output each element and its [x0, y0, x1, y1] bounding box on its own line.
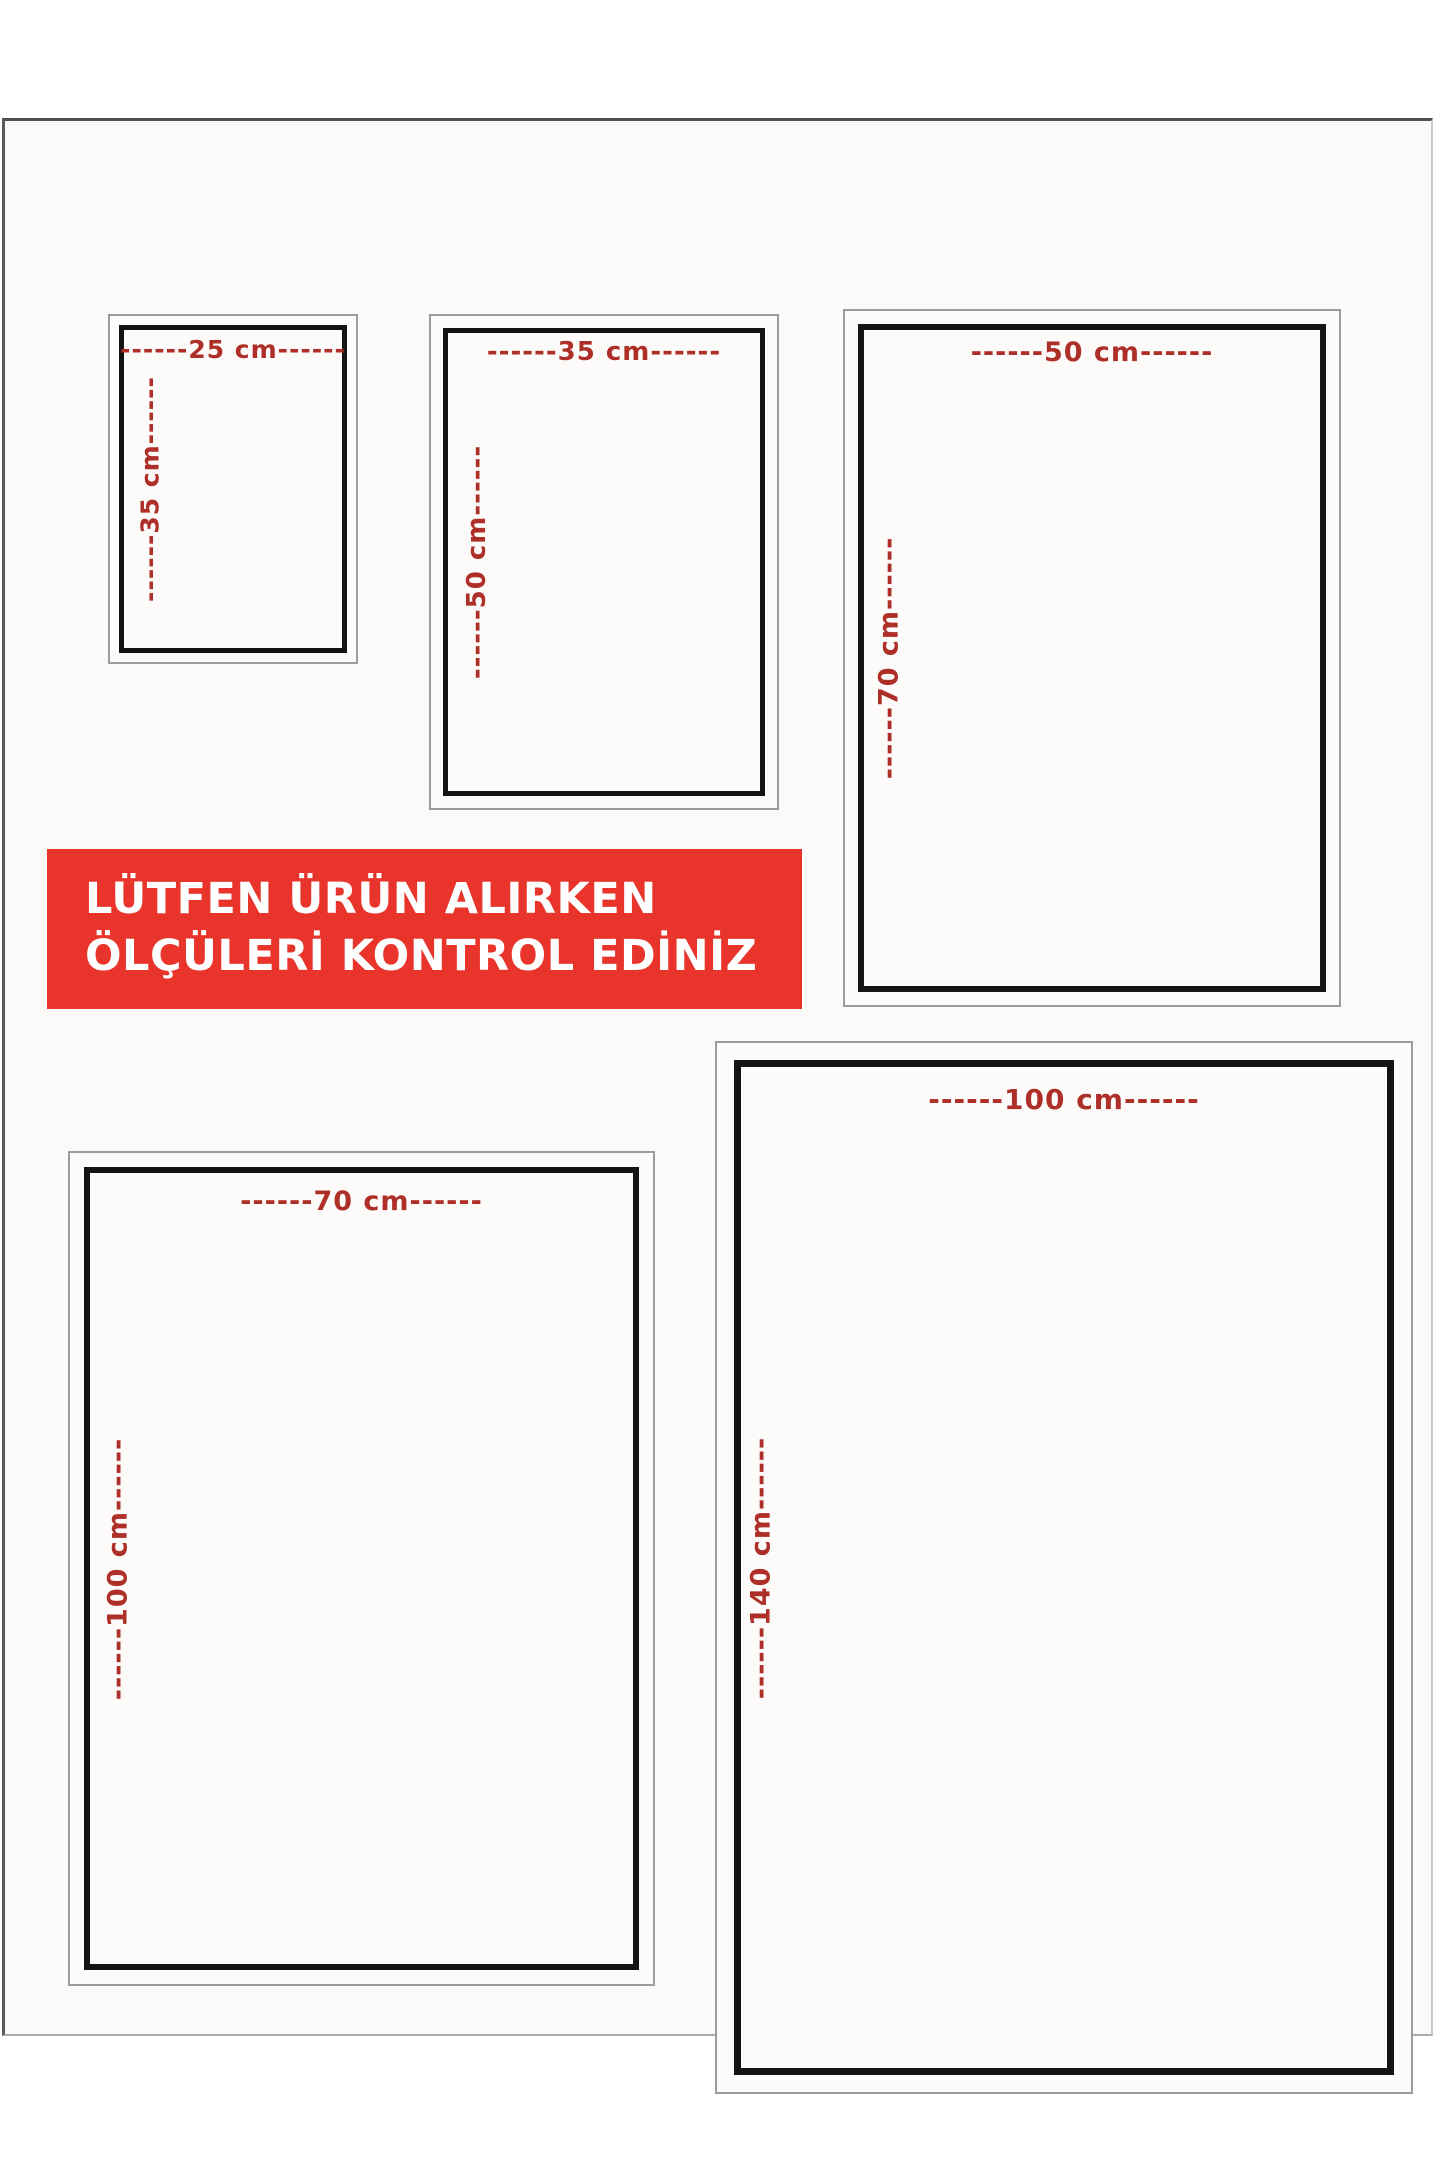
size-box-50x70: ------50 cm------ ------70 cm------	[843, 309, 1341, 1007]
width-label-50cm: ------50 cm------	[845, 337, 1339, 368]
height-label-50cm: ------50 cm------	[462, 445, 492, 679]
warning-banner-line1: LÜTFEN ÜRÜN ALIRKEN	[85, 871, 802, 928]
warning-banner: LÜTFEN ÜRÜN ALIRKEN ÖLÇÜLERİ KONTROL EDİ…	[47, 849, 802, 1009]
size-box-70x100-frame	[84, 1167, 639, 1970]
width-label-100cm: ------100 cm------	[717, 1083, 1411, 1116]
size-box-50x70-frame	[858, 324, 1326, 992]
size-box-25x35: ------25 cm------ ------35 cm------	[108, 314, 358, 664]
height-label-70cm: ------70 cm------	[874, 537, 905, 780]
width-label-35cm: ------35 cm------	[431, 337, 777, 367]
height-label-140cm: ------140 cm------	[746, 1436, 777, 1698]
size-box-100x140: ------100 cm------ ------140 cm------	[715, 1041, 1413, 2094]
warning-banner-line2: ÖLÇÜLERİ KONTROL EDİNİZ	[85, 928, 802, 985]
width-label-25cm: ------25 cm------	[110, 335, 356, 364]
height-label-35cm: ------35 cm------	[136, 376, 165, 602]
size-box-35x50: ------35 cm------ ------50 cm------	[429, 314, 779, 810]
size-chart-card: ------25 cm------ ------35 cm------ ----…	[2, 118, 1433, 2036]
size-box-70x100: ------70 cm------ ------100 cm------	[68, 1151, 655, 1986]
size-box-100x140-frame	[734, 1060, 1394, 2075]
page: ------25 cm------ ------35 cm------ ----…	[0, 0, 1440, 2160]
width-label-70cm: ------70 cm------	[70, 1186, 653, 1217]
height-label-100cm: ------100 cm------	[103, 1437, 134, 1699]
